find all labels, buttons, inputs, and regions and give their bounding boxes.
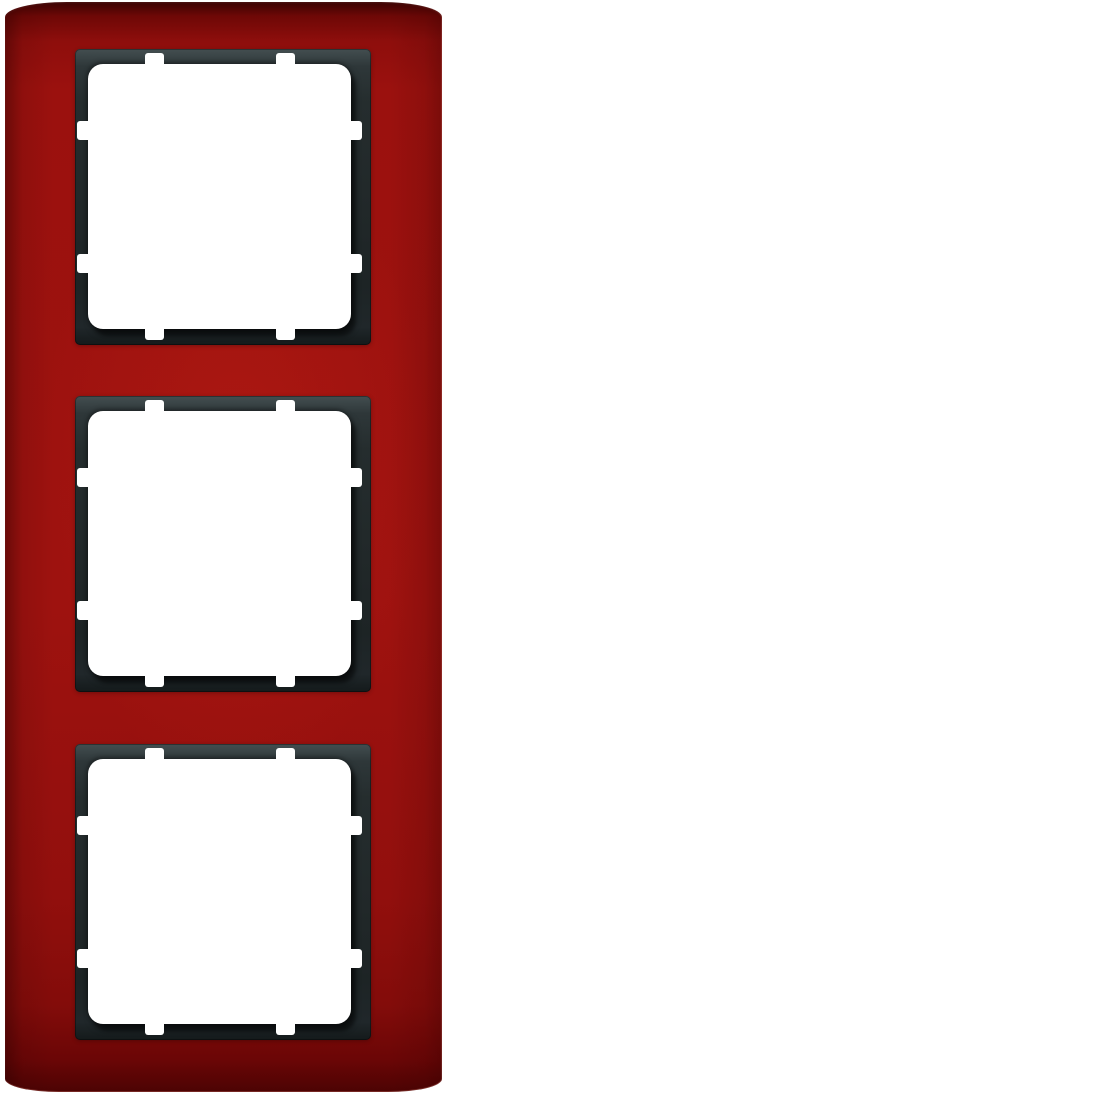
fixing-tab-left	[77, 601, 93, 620]
fixing-tab-top	[276, 53, 295, 69]
inner-frame	[75, 744, 371, 1040]
fixing-tab-top	[276, 748, 295, 764]
module-opening	[88, 759, 351, 1024]
fixing-tab-bottom	[145, 671, 164, 687]
fixing-tab-left	[77, 254, 93, 273]
product-photo	[0, 0, 1100, 1100]
fixing-tab-right	[346, 121, 362, 140]
fixing-tab-bottom	[276, 671, 295, 687]
inner-frame	[75, 396, 371, 692]
fixing-tab-top	[145, 53, 164, 69]
fixing-tab-right	[346, 601, 362, 620]
fixing-tab-bottom	[276, 1019, 295, 1035]
module-window-module-2	[75, 396, 371, 692]
fixing-tab-left	[77, 121, 93, 140]
inner-frame	[75, 49, 371, 345]
fixing-tab-right	[346, 254, 362, 273]
fixing-tab-top	[145, 400, 164, 416]
module-window-module-1	[75, 49, 371, 345]
module-opening	[88, 64, 351, 329]
fixing-tab-bottom	[145, 1019, 164, 1035]
fixing-tab-left	[77, 468, 93, 487]
module-window-module-3	[75, 744, 371, 1040]
module-opening	[88, 411, 351, 676]
fixing-tab-top	[276, 400, 295, 416]
fixing-tab-left	[77, 816, 93, 835]
fixing-tab-top	[145, 748, 164, 764]
fixing-tab-left	[77, 949, 93, 968]
cover-frame-plate	[5, 2, 442, 1092]
fixing-tab-right	[346, 816, 362, 835]
fixing-tab-bottom	[276, 324, 295, 340]
fixing-tab-right	[346, 949, 362, 968]
fixing-tab-bottom	[145, 324, 164, 340]
fixing-tab-right	[346, 468, 362, 487]
